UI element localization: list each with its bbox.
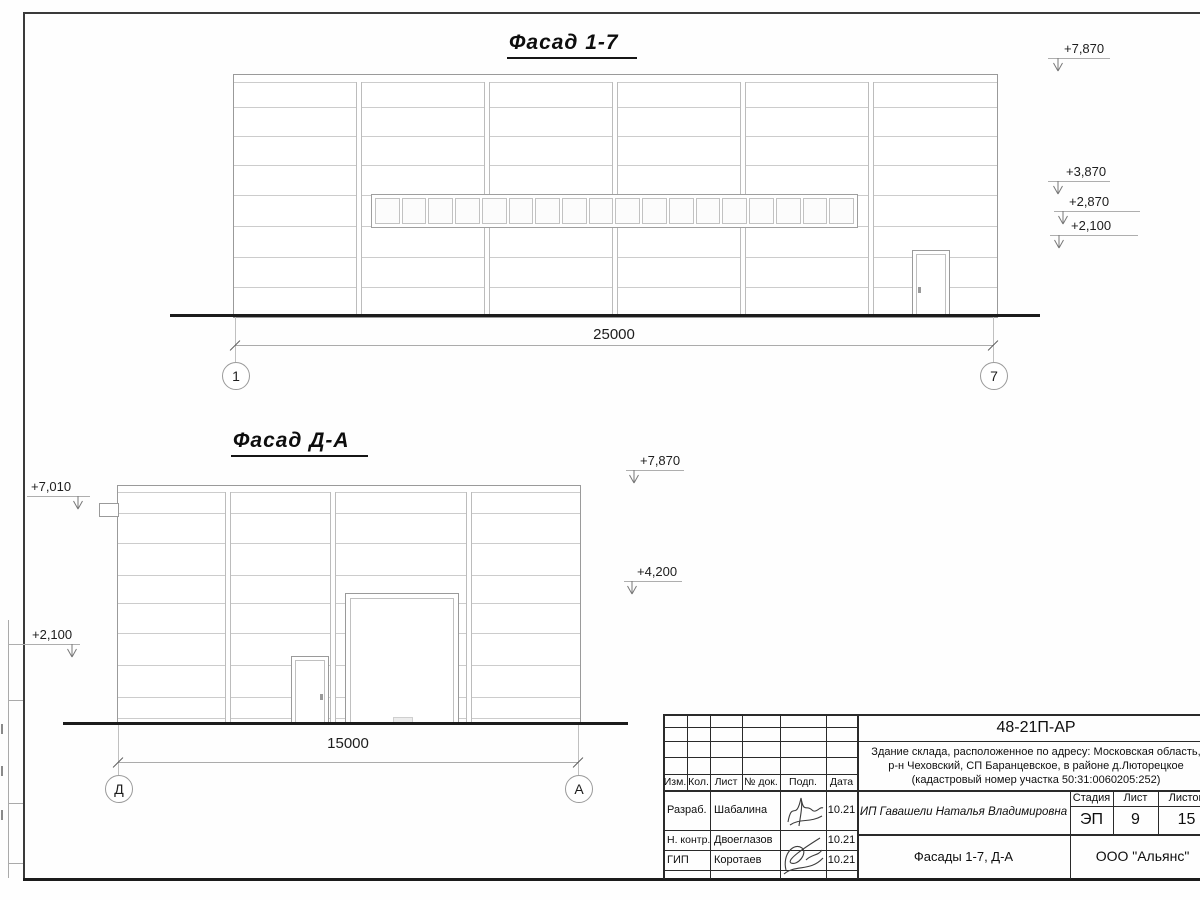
col-header-kol: Кол.	[687, 774, 710, 790]
extension-line	[578, 725, 579, 775]
margin-stamp-line	[8, 620, 9, 878]
panel-line	[118, 513, 580, 514]
elevation-arrow-icon	[628, 470, 640, 485]
role-label: Разраб.	[663, 790, 714, 830]
titleblock-address: Здание склада, расположенное по адресу: …	[857, 745, 1200, 787]
window-pane	[749, 198, 774, 224]
mullion	[225, 492, 231, 724]
elevation-arrow-icon	[1052, 181, 1064, 196]
window-pane	[589, 198, 614, 224]
elevation-arrow-icon	[1053, 235, 1065, 250]
elevation-label: +2,100	[32, 627, 72, 642]
axis-bubble-1: 1	[222, 362, 250, 390]
margin-stamp-divider	[8, 803, 23, 804]
margin-stamp-divider	[8, 700, 23, 701]
ground-line	[170, 314, 1040, 317]
elevation-label: +3,870	[1066, 164, 1106, 179]
window-pane	[402, 198, 427, 224]
titleblock-client: ИП Гавашели Наталья Владимировна	[857, 790, 1070, 834]
entrance-door	[291, 656, 329, 725]
window-pane	[482, 198, 507, 224]
window-pane	[829, 198, 854, 224]
col-header-podp: Подп.	[780, 774, 826, 790]
role-name: Двоеглазов	[710, 830, 784, 850]
door-leaf	[295, 660, 325, 725]
col-header-izm: Изм.	[663, 774, 687, 790]
ground-line	[63, 722, 628, 725]
entrance-door	[912, 250, 950, 317]
door-handle	[918, 287, 921, 293]
facade-1-7-title: Фасад 1-7	[507, 31, 637, 59]
mullion	[466, 492, 472, 724]
role-date: 10.21	[826, 850, 857, 870]
facade-d-a-title: Фасад Д-А	[231, 429, 368, 457]
stage-value: ЭП	[1070, 806, 1113, 834]
facade-1-7-building	[233, 74, 998, 318]
elevation-arrow-icon	[1057, 211, 1069, 226]
signature	[778, 830, 826, 878]
address-line: (кадастровый номер участка 50:31:0060205…	[857, 773, 1200, 787]
dimension-line	[235, 345, 993, 346]
sheet-label: Лист	[1113, 790, 1158, 806]
signature	[782, 792, 826, 830]
role-label: Н. контр.	[663, 830, 714, 850]
titleblock-drawing-title: Фасады 1-7, Д-А	[857, 834, 1070, 878]
titleblock-company: ООО "Альянс"	[1070, 834, 1200, 878]
gate-leaf	[350, 598, 454, 725]
role-name: Коротаев	[710, 850, 784, 870]
panel-line	[118, 543, 580, 544]
sheets-label: Листов	[1158, 790, 1200, 806]
elevation-label: +4,200	[637, 564, 677, 579]
address-line: Здание склада, расположенное по адресу: …	[857, 745, 1200, 759]
mullion	[356, 82, 362, 317]
col-header-ndok: № док.	[742, 774, 780, 790]
window-pane	[428, 198, 453, 224]
address-line: р-н Чеховский, СП Баранцевское, в районе…	[857, 759, 1200, 773]
role-name: Шабалина	[710, 790, 784, 830]
elevation-label: +7,870	[640, 453, 680, 468]
elevation-arrow-icon	[626, 581, 638, 596]
frame-top	[23, 12, 1200, 14]
door-leaf	[916, 254, 946, 317]
frame-bottom	[23, 878, 1200, 881]
sheet-number: 9	[1113, 806, 1158, 834]
dimension-line	[118, 762, 578, 763]
col-header-list: Лист	[710, 774, 742, 790]
margin-text-stub	[1, 810, 3, 820]
role-date: 10.21	[826, 790, 857, 830]
window-pane	[696, 198, 721, 224]
window-pane	[803, 198, 828, 224]
role-label: ГИП	[663, 850, 714, 870]
mullion	[330, 492, 336, 724]
axis-bubble-a: А	[565, 775, 593, 803]
margin-stamp-divider	[8, 863, 23, 864]
window-pane	[642, 198, 667, 224]
titleblock-line	[663, 727, 857, 728]
role-date: 10.21	[826, 830, 857, 850]
window-pane	[509, 198, 534, 224]
mullion	[868, 82, 874, 317]
elevation-arrow-icon	[72, 496, 84, 511]
elevation-label: +7,870	[1064, 41, 1104, 56]
ribbon-window	[371, 194, 858, 228]
window-pane	[535, 198, 560, 224]
titleblock-line	[663, 870, 857, 871]
door-handle	[320, 694, 323, 700]
axis-bubble-d: Д	[105, 775, 133, 803]
window-pane	[669, 198, 694, 224]
dimension-label: 15000	[118, 735, 578, 752]
titleblock-doc-number: 48-21П-АР	[857, 714, 1200, 741]
window-pane	[722, 198, 747, 224]
drawing-sheet: Фасад 1-7	[0, 0, 1200, 900]
frame-left	[23, 12, 25, 878]
titleblock-line	[663, 757, 857, 758]
window-pane	[375, 198, 400, 224]
elevation-arrow-icon	[66, 644, 78, 659]
window-pane	[776, 198, 801, 224]
elevation-label: +2,100	[1071, 218, 1111, 233]
facade-d-a-building	[117, 485, 581, 725]
extension-line	[993, 317, 994, 362]
panel-line	[118, 575, 580, 576]
gate	[345, 593, 459, 725]
sheets-total: 15	[1158, 806, 1200, 834]
elevation-arrow-icon	[1052, 58, 1064, 73]
elevation-label: +2,870	[1069, 194, 1109, 209]
window-pane	[615, 198, 640, 224]
parapet-line	[118, 492, 580, 493]
axis-bubble-7: 7	[980, 362, 1008, 390]
margin-text-stub	[1, 766, 3, 776]
col-header-data: Дата	[826, 774, 857, 790]
stage-label: Стадия	[1070, 790, 1113, 806]
canopy	[99, 503, 119, 517]
titleblock-line	[663, 741, 1200, 742]
margin-text-stub	[1, 724, 3, 734]
window-pane	[455, 198, 480, 224]
dimension-label: 25000	[235, 326, 993, 343]
window-pane	[562, 198, 587, 224]
elevation-label: +7,010	[31, 479, 71, 494]
